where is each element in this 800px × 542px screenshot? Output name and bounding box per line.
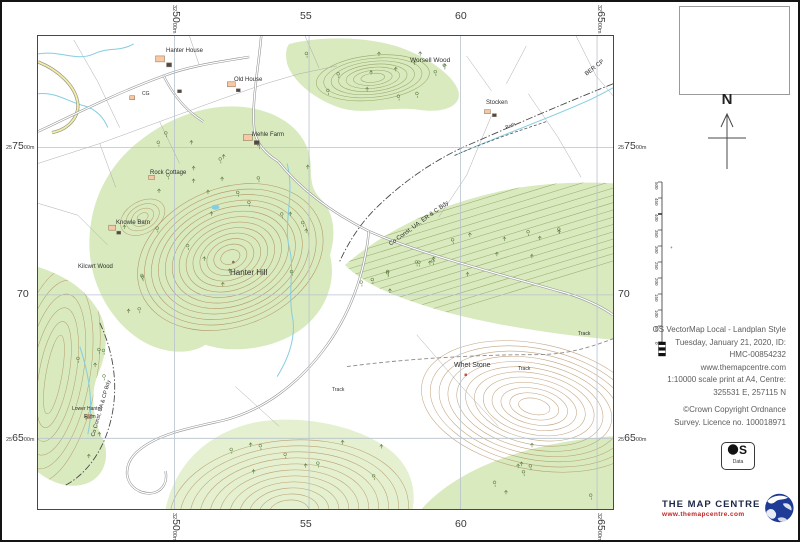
grid-label: 325000m bbox=[171, 5, 182, 34]
grid-label: 55 bbox=[300, 11, 312, 22]
pond bbox=[211, 205, 219, 210]
grid-label: 256500m bbox=[618, 433, 647, 444]
grid-label: 70 bbox=[17, 289, 29, 300]
os-data-logo: S Data bbox=[721, 442, 755, 470]
woodland-area bbox=[286, 38, 459, 110]
whet-stone-mark bbox=[465, 374, 467, 376]
scale-bar-part: 200 bbox=[654, 278, 659, 286]
grid-label: 55 bbox=[300, 519, 312, 530]
scale-bar-part: 350 bbox=[654, 230, 659, 238]
print-info: OS VectorMap Local - Landplan StyleTuesd… bbox=[653, 324, 786, 374]
scale-info: 1:10000 scale print at A4, Centre:325531… bbox=[667, 374, 786, 399]
scale-bar-part: 400 bbox=[654, 214, 659, 222]
brand-text: THE MAP CENTRE www.themapcentre.com bbox=[662, 499, 760, 518]
north-label: N bbox=[702, 92, 752, 107]
woodland-area bbox=[89, 106, 333, 351]
os-icon: S bbox=[727, 443, 749, 456]
scale-bar-part: 150 bbox=[654, 294, 659, 302]
grid-label: 60 bbox=[455, 11, 467, 22]
grid-label: 70 bbox=[618, 289, 630, 300]
grid-label: 325000m bbox=[171, 513, 182, 542]
copyright-info: ©Crown Copyright OrdnanceSurvey. Licence… bbox=[674, 404, 786, 429]
print-info-text: Tuesday, January 21, 2020, ID: bbox=[653, 337, 786, 350]
north-arrow-icon bbox=[702, 107, 752, 171]
os-data-label: Data bbox=[722, 460, 754, 465]
scale-info-text: 325531 E, 257115 N bbox=[667, 387, 786, 400]
map-print-page: Hanter HouseOld HouseCGMehle FarmStocken… bbox=[0, 0, 800, 542]
brand-block: THE MAP CENTRE www.themapcentre.com bbox=[662, 488, 796, 528]
brand-url: www.themapcentre.com bbox=[662, 511, 760, 518]
scale-bar-part: 100 bbox=[654, 310, 659, 318]
scale-bar-part: 500 bbox=[654, 182, 659, 190]
summit-mark bbox=[232, 261, 235, 264]
copyright-info-text: Survey. Licence no. 100018971 bbox=[674, 417, 786, 430]
woodland-area bbox=[345, 183, 613, 340]
brand-name: THE MAP CENTRE bbox=[662, 499, 760, 510]
grid-label: 257500m bbox=[6, 141, 35, 152]
grid-label: 326500m bbox=[596, 513, 607, 542]
print-info-text: HMC-00854232 bbox=[653, 349, 786, 362]
svg-text:S: S bbox=[739, 443, 747, 456]
print-info-text: OS VectorMap Local - Landplan Style bbox=[653, 324, 786, 337]
grid-label: 256500m bbox=[6, 433, 35, 444]
scale-info-text: 1:10000 scale print at A4, Centre: bbox=[667, 374, 786, 387]
print-info-text: www.themapcentre.com bbox=[653, 362, 786, 375]
grid-label: 60 bbox=[455, 519, 467, 530]
copyright-info-text: ©Crown Copyright Ordnance bbox=[674, 404, 786, 417]
scale-bar-part: + bbox=[670, 245, 673, 250]
map-area: Hanter HouseOld HouseCGMehle FarmStocken… bbox=[37, 35, 614, 510]
grid-label: 257500m bbox=[618, 141, 647, 152]
north-indicator: N bbox=[702, 92, 752, 172]
preview-box bbox=[679, 6, 790, 95]
grid-label: 326500m bbox=[596, 5, 607, 34]
scale-bar-part: 450 bbox=[654, 198, 659, 206]
topographic-map-art bbox=[38, 36, 613, 509]
scale-bar-part: 250 bbox=[654, 262, 659, 270]
globe-icon bbox=[763, 488, 796, 528]
scale-bar-part: 300 bbox=[654, 246, 659, 254]
